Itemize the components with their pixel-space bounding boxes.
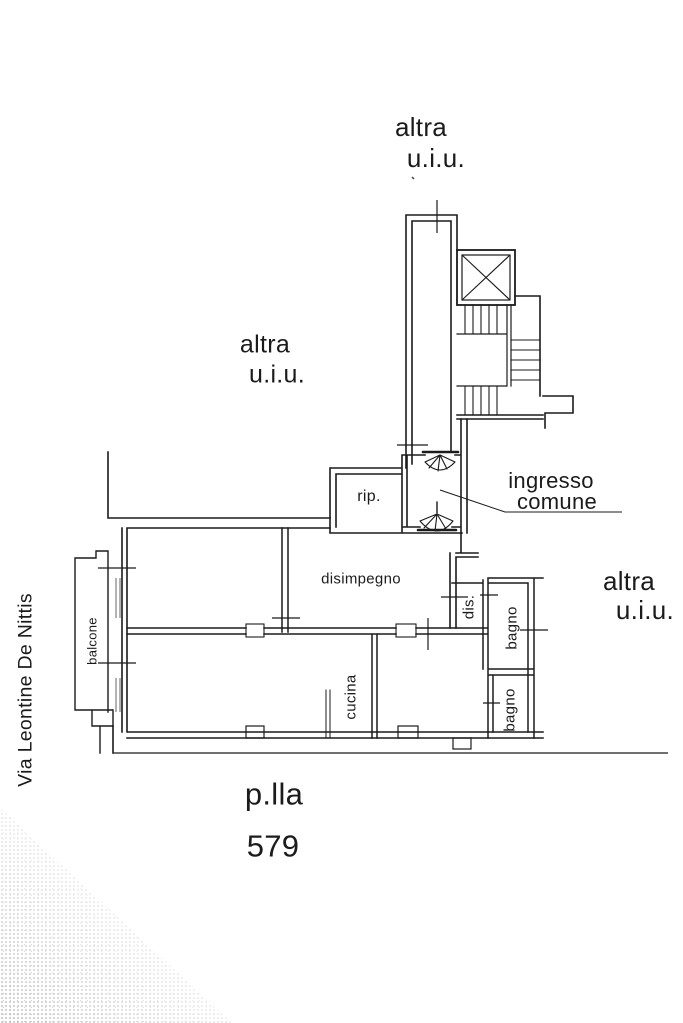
room-label-hallway: disimpegno [321, 572, 401, 587]
neighbor-top-label-line2: u.i.u. [407, 145, 465, 171]
interior-walls [127, 528, 543, 738]
room-label-bathroom-upper: bagno [505, 606, 520, 649]
floor-plan-sheet: altra u.i.u. altra u.i.u. altra u.i.u. i… [0, 0, 683, 1023]
window-lines [116, 578, 120, 712]
common-entrance-label-line2: comune [517, 491, 597, 513]
street-name-label: Via Leontine De Nittis [16, 593, 36, 787]
common-corridor-walls [406, 215, 457, 468]
door-swing-symbols [418, 452, 458, 531]
room-label-toilet: dis. [462, 595, 477, 620]
scan-dot [412, 177, 414, 179]
staircase [457, 296, 573, 428]
neighbor-right-label-line2: u.i.u. [616, 597, 674, 623]
neighbor-right-label-line1: altra [603, 568, 655, 594]
neighbor-left-label-line2: u.i.u. [249, 363, 305, 388]
parcel-prefix-label: p.lla [245, 779, 303, 810]
room-label-storage: rip. [357, 489, 380, 505]
kitchen-stub-wall [326, 690, 330, 738]
neighbor-left-label-line1: altra [240, 333, 290, 358]
neighbor-top-label-line1: altra [395, 114, 447, 140]
room-label-bathroom-lower: bagno [503, 688, 518, 731]
parcel-number-label: 579 [247, 831, 300, 862]
elevator-shaft [457, 250, 515, 305]
room-label-kitchen: cucina [344, 674, 359, 719]
stair-steps [465, 305, 540, 415]
room-label-balcony: balcone [86, 617, 99, 665]
